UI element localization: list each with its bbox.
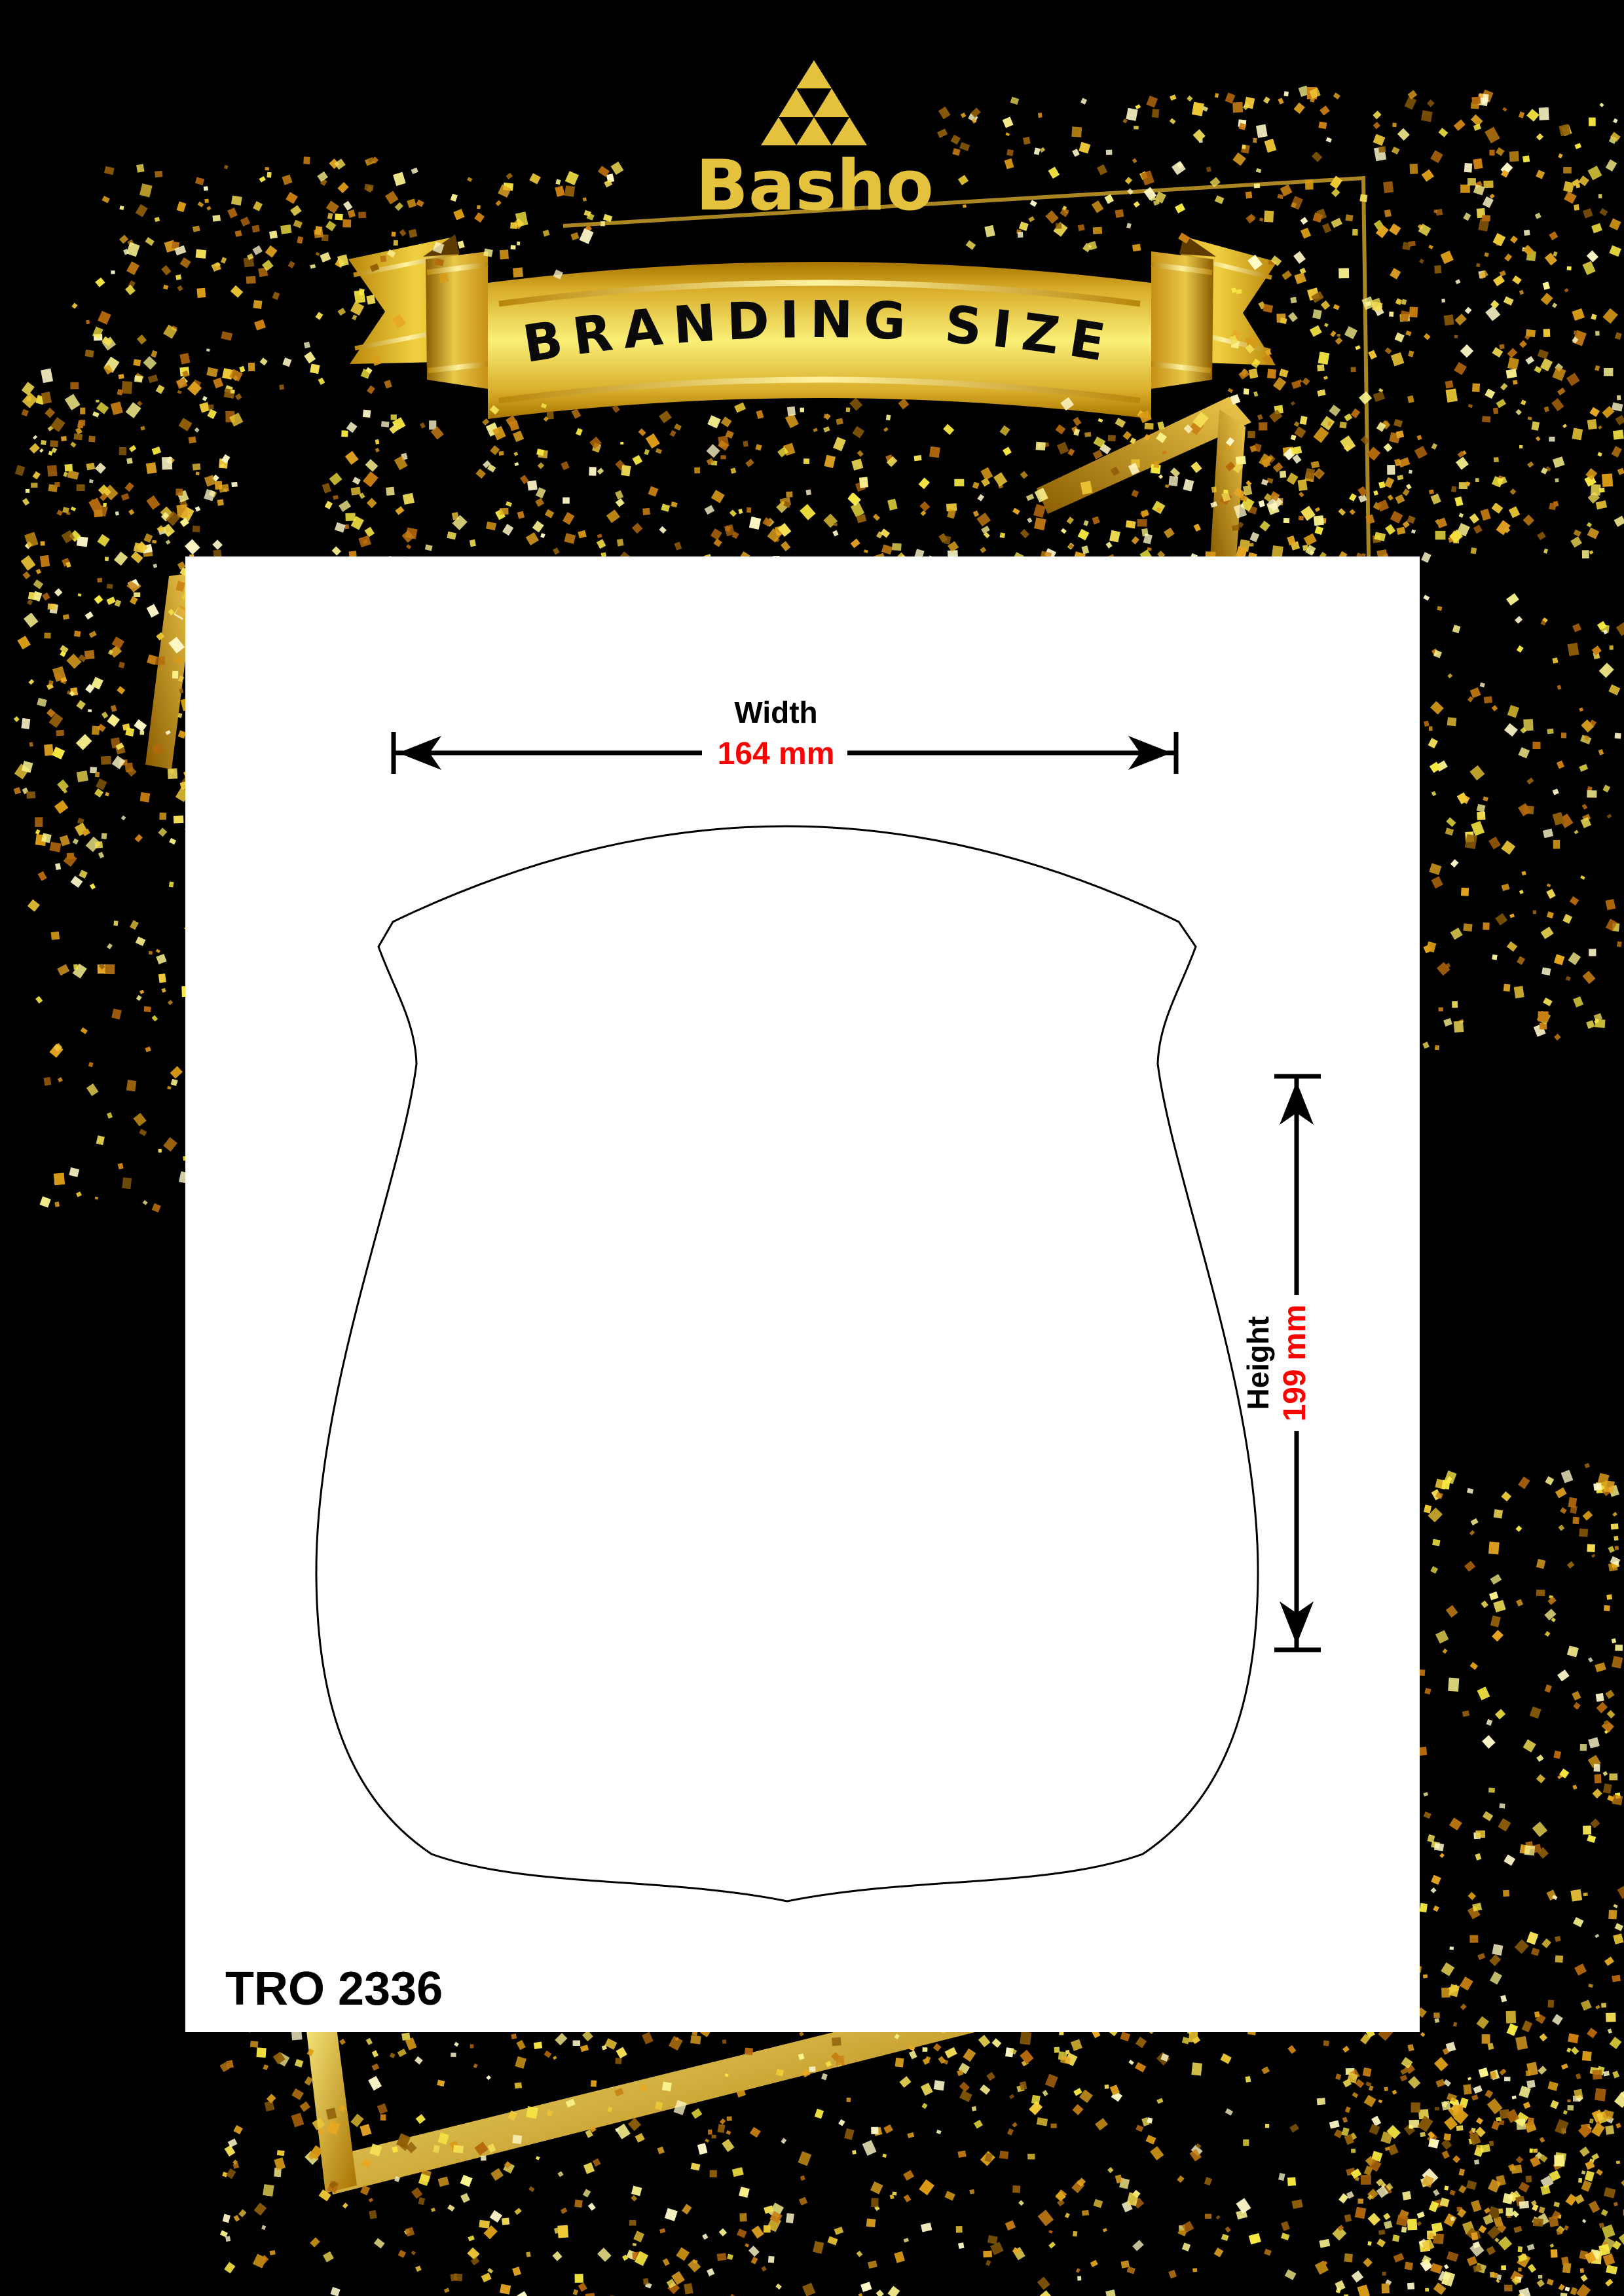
height-label: Height xyxy=(1241,1316,1275,1410)
glitter-speck xyxy=(1454,1021,1464,1032)
glitter-speck xyxy=(787,407,796,416)
glitter-speck xyxy=(88,709,92,712)
glitter-speck xyxy=(513,267,523,277)
glitter-speck xyxy=(175,488,183,496)
glitter-speck xyxy=(85,350,94,357)
glitter-speck xyxy=(1587,419,1597,429)
glitter-speck xyxy=(1615,733,1621,738)
glitter-speck xyxy=(1082,2210,1089,2216)
glitter-speck xyxy=(1578,2178,1582,2183)
glitter-speck xyxy=(1506,369,1517,378)
glitter-speck xyxy=(743,441,748,447)
glitter-speck xyxy=(1598,194,1602,198)
glitter-speck xyxy=(1105,2085,1109,2089)
glitter-speck xyxy=(380,255,386,262)
glitter-speck xyxy=(1476,263,1481,267)
glitter-speck xyxy=(1435,1045,1439,1050)
glitter-speck xyxy=(1594,1764,1600,1772)
glitter-speck xyxy=(1192,102,1204,117)
glitter-speck xyxy=(269,230,278,239)
glitter-speck xyxy=(498,451,504,456)
glitter-speck xyxy=(1595,331,1599,336)
glitter-speck xyxy=(1429,490,1434,494)
product-code: TRO 2336 xyxy=(225,1963,443,2015)
glitter-speck xyxy=(44,744,54,756)
glitter-speck xyxy=(1526,2080,1536,2088)
glitter-speck xyxy=(342,219,351,228)
glitter-speck xyxy=(515,2083,522,2089)
glitter-speck xyxy=(149,951,153,955)
glitter-speck xyxy=(1504,2077,1511,2081)
glitter-speck xyxy=(1533,2218,1543,2227)
glitter-speck xyxy=(1298,479,1308,491)
glitter-speck xyxy=(1444,2185,1449,2190)
glitter-speck xyxy=(88,436,96,443)
glitter-speck xyxy=(615,2058,621,2064)
glitter-speck xyxy=(80,408,85,414)
glitter-speck xyxy=(1505,2208,1513,2216)
glitter-speck xyxy=(1249,543,1254,546)
glitter-speck xyxy=(95,841,103,848)
glitter-speck xyxy=(642,508,650,515)
glitter-speck xyxy=(1492,1944,1503,1956)
glitter-speck xyxy=(1606,2013,1616,2022)
glitter-speck xyxy=(470,2044,474,2049)
glitter-speck xyxy=(621,465,631,476)
glitter-speck xyxy=(510,222,517,228)
glitter-speck xyxy=(892,543,902,551)
glitter-speck xyxy=(1498,2208,1503,2214)
glitter-speck xyxy=(1429,726,1433,731)
glitter-speck xyxy=(1605,2125,1614,2135)
glitter-speck xyxy=(643,2278,649,2285)
glitter-speck xyxy=(174,816,184,824)
glitter-speck xyxy=(1587,1544,1595,1552)
glitter-speck xyxy=(1392,122,1397,127)
glitter-speck xyxy=(511,245,516,249)
glitter-speck xyxy=(208,404,214,409)
glitter-speck xyxy=(303,156,310,164)
glitter-speck xyxy=(747,507,751,513)
glitter-speck xyxy=(50,440,58,447)
glitter-speck xyxy=(1603,1783,1612,1794)
glitter-speck xyxy=(1211,486,1217,493)
glitter-speck xyxy=(263,2184,274,2196)
glitter-speck xyxy=(101,833,107,839)
glitter-speck xyxy=(1614,1536,1618,1541)
glitter-speck xyxy=(954,479,964,486)
glitter-speck xyxy=(1532,742,1540,749)
glitter-speck xyxy=(929,446,940,458)
glitter-speck xyxy=(1612,1975,1621,1982)
glitter-speck xyxy=(1387,465,1395,475)
glitter-speck xyxy=(1547,729,1553,734)
width-value: 164 mm xyxy=(718,737,835,771)
glitter-speck xyxy=(125,763,134,773)
glitter-speck xyxy=(1243,2140,1249,2146)
glitter-speck xyxy=(1323,2040,1329,2046)
glitter-speck xyxy=(786,492,792,498)
glitter-speck xyxy=(1475,478,1479,482)
glitter-speck xyxy=(1272,545,1283,558)
glitter-speck xyxy=(1441,2101,1450,2111)
glitter-speck xyxy=(1471,547,1477,554)
glitter-speck xyxy=(717,2253,727,2261)
glitter-speck xyxy=(1134,126,1139,130)
glitter-speck xyxy=(1561,733,1566,738)
glitter-speck xyxy=(1145,423,1154,429)
glitter-speck xyxy=(1454,335,1458,338)
glitter-speck xyxy=(26,489,29,493)
glitter-speck xyxy=(1567,266,1572,270)
glitter-speck xyxy=(204,199,208,203)
glitter-speck xyxy=(35,817,43,827)
glitter-speck xyxy=(1339,422,1346,428)
glitter-speck xyxy=(1242,145,1246,149)
glitter-speck xyxy=(344,524,349,530)
glitter-speck xyxy=(265,167,269,171)
glitter-speck xyxy=(895,2058,904,2068)
glitter-speck xyxy=(1519,2201,1529,2209)
glitter-speck xyxy=(511,2033,517,2039)
glitter-speck xyxy=(152,540,157,544)
glitter-speck xyxy=(1115,209,1124,217)
glitter-speck xyxy=(1589,118,1596,126)
sheet-canvas: BRANDING SIZE Basho Width 164 mm xyxy=(0,0,1624,2296)
glitter-speck xyxy=(48,680,54,685)
glitter-speck xyxy=(1483,181,1493,189)
glitter-speck xyxy=(1420,2132,1426,2137)
glitter-speck xyxy=(1533,910,1536,914)
glitter-speck xyxy=(1054,2047,1060,2053)
glitter-speck xyxy=(1541,968,1551,975)
glitter-speck xyxy=(77,771,88,782)
glitter-speck xyxy=(168,768,177,779)
glitter-speck xyxy=(1555,1956,1563,1963)
glitter-speck xyxy=(1523,719,1534,731)
glitter-speck xyxy=(1473,158,1483,170)
glitter-speck xyxy=(1536,1590,1545,1596)
glitter-speck xyxy=(1467,178,1476,185)
glitter-speck xyxy=(1574,2089,1583,2099)
glitter-speck xyxy=(1602,473,1613,487)
glitter-speck xyxy=(77,484,85,492)
glitter-speck xyxy=(1078,225,1085,232)
glitter-speck xyxy=(1318,122,1327,130)
glitter-speck xyxy=(196,249,207,259)
glitter-speck xyxy=(158,974,166,983)
glitter-speck xyxy=(451,2052,456,2057)
glitter-speck xyxy=(557,2225,568,2238)
glitter-speck xyxy=(1530,2149,1533,2153)
glitter-speck xyxy=(914,455,922,461)
glitter-speck xyxy=(1264,211,1274,223)
glitter-speck xyxy=(61,436,67,441)
glitter-speck xyxy=(1572,1517,1579,1524)
glitter-speck xyxy=(620,442,623,445)
glitter-speck xyxy=(29,742,33,747)
glitter-speck xyxy=(341,430,348,437)
glitter-speck xyxy=(1407,2219,1417,2231)
glitter-speck xyxy=(366,295,375,304)
glitter-speck xyxy=(1267,369,1276,378)
glitter-speck xyxy=(86,320,90,325)
glitter-speck xyxy=(111,270,115,274)
glitter-speck xyxy=(40,555,50,568)
glitter-speck xyxy=(1580,2268,1584,2273)
glitter-speck xyxy=(1595,2088,1606,2102)
glitter-speck xyxy=(363,410,371,418)
glitter-speck xyxy=(1432,1539,1440,1546)
glitter-speck xyxy=(1504,2285,1512,2291)
glitter-speck xyxy=(1506,2011,1517,2023)
glitter-speck xyxy=(1402,242,1411,250)
glitter-speck xyxy=(1513,380,1518,384)
glitter-speck xyxy=(1433,2013,1440,2018)
glitter-speck xyxy=(1549,437,1555,442)
glitter-speck xyxy=(1474,2159,1479,2164)
glitter-speck xyxy=(1284,91,1289,96)
glitter-speck xyxy=(1299,516,1304,520)
glitter-speck xyxy=(1582,2051,1592,2061)
glitter-speck xyxy=(1604,1605,1610,1611)
glitter-speck xyxy=(1361,2175,1371,2185)
glitter-speck xyxy=(1610,646,1614,650)
glitter-speck xyxy=(1382,2272,1386,2276)
glitter-speck xyxy=(94,509,103,517)
glitter-speck xyxy=(1317,365,1325,372)
glitter-speck xyxy=(126,1080,137,1091)
glitter-speck xyxy=(119,447,127,456)
glitter-speck xyxy=(847,2098,851,2102)
glitter-speck xyxy=(1551,2249,1558,2257)
glitter-speck xyxy=(1351,2149,1356,2153)
glitter-speck xyxy=(56,730,64,737)
glitter-speck xyxy=(1106,150,1113,155)
glitter-speck xyxy=(193,526,200,533)
glitter-speck xyxy=(134,375,143,382)
glitter-speck xyxy=(1583,1893,1588,1897)
glitter-speck xyxy=(1471,2232,1478,2240)
glitter-speck xyxy=(708,2129,712,2134)
glitter-speck xyxy=(629,2220,637,2226)
glitter-speck xyxy=(44,1077,52,1085)
glitter-speck xyxy=(999,2151,1008,2159)
glitter-speck xyxy=(1519,445,1522,448)
glitter-speck xyxy=(1317,2098,1325,2105)
glitter-speck xyxy=(1443,2133,1451,2140)
glitter-speck xyxy=(1402,2191,1411,2200)
glitter-speck xyxy=(107,584,113,589)
glitter-speck xyxy=(1604,1480,1615,1493)
glitter-speck xyxy=(1534,2011,1540,2018)
glitter-speck xyxy=(1445,380,1454,389)
glitter-speck xyxy=(196,288,206,298)
glitter-speck xyxy=(1409,2120,1420,2128)
glitter-speck xyxy=(871,2127,878,2134)
glitter-speck xyxy=(252,225,260,232)
glitter-speck xyxy=(1599,2223,1604,2228)
glitter-speck xyxy=(144,1006,151,1012)
glitter-speck xyxy=(1596,1693,1604,1702)
glitter-speck xyxy=(1488,1787,1495,1793)
glitter-speck xyxy=(1447,717,1457,726)
glitter-speck xyxy=(1527,2117,1534,2126)
glitter-speck xyxy=(1168,476,1178,486)
glitter-speck xyxy=(1488,1542,1500,1555)
glitter-speck xyxy=(866,2219,876,2228)
glitter-speck xyxy=(517,242,520,246)
glitter-speck xyxy=(575,2274,583,2283)
glitter-speck xyxy=(1441,299,1445,302)
glitter-speck xyxy=(204,186,208,191)
glitter-speck xyxy=(1423,1974,1428,1978)
glitter-speck xyxy=(526,2106,538,2119)
glitter-speck xyxy=(1522,155,1530,162)
glitter-speck xyxy=(1489,150,1494,156)
glitter-speck xyxy=(1547,2000,1554,2008)
glitter-speck xyxy=(834,523,838,526)
glitter-speck xyxy=(1533,2149,1538,2153)
glitter-speck xyxy=(745,2048,753,2056)
glitter-speck xyxy=(1435,531,1446,539)
glitter-speck xyxy=(662,2082,672,2092)
glitter-speck xyxy=(193,464,201,471)
glitter-speck xyxy=(1027,2154,1035,2160)
glitter-speck xyxy=(65,464,73,471)
glitter-speck xyxy=(139,731,144,735)
glitter-speck xyxy=(1259,422,1267,431)
glitter-speck xyxy=(1018,232,1024,238)
glitter-speck xyxy=(1425,2288,1429,2291)
glitter-speck xyxy=(1378,146,1386,153)
glitter-speck xyxy=(1517,2246,1522,2252)
glitter-speck xyxy=(155,657,165,665)
glitter-speck xyxy=(1587,790,1596,797)
glitter-speck xyxy=(256,2047,266,2058)
glitter-speck xyxy=(805,489,811,495)
glitter-speck xyxy=(159,812,166,820)
glitter-speck xyxy=(380,2115,386,2121)
glitter-speck xyxy=(836,2056,844,2066)
glitter-speck xyxy=(1543,329,1551,337)
glitter-speck xyxy=(1456,2125,1464,2131)
glitter-speck xyxy=(1526,2070,1531,2076)
glitter-speck xyxy=(1434,265,1441,274)
glitter-speck xyxy=(1494,457,1499,462)
glitter-speck xyxy=(212,215,221,221)
glitter-speck xyxy=(1460,185,1470,193)
glitter-speck xyxy=(1616,2160,1620,2164)
glitter-speck xyxy=(162,457,172,470)
glitter-speck xyxy=(1599,488,1605,493)
glitter-speck xyxy=(1137,519,1147,527)
glitter-speck xyxy=(1492,955,1497,960)
glitter-speck xyxy=(1205,2214,1211,2219)
glitter-speck xyxy=(1518,2268,1522,2272)
glitter-speck xyxy=(574,2199,583,2208)
glitter-speck xyxy=(1363,2068,1372,2077)
glitter-speck xyxy=(720,455,726,459)
glitter-speck xyxy=(1357,2198,1363,2204)
glitter-speck xyxy=(105,556,109,561)
glitter-speck xyxy=(44,632,50,638)
glitter-speck xyxy=(158,1149,162,1153)
glitter-speck xyxy=(391,414,397,420)
glitter-speck xyxy=(196,472,200,475)
glitter-speck xyxy=(277,2150,285,2156)
glitter-speck xyxy=(1574,331,1578,335)
glitter-speck xyxy=(122,381,133,394)
glitter-speck xyxy=(481,2156,487,2161)
glitter-speck xyxy=(600,221,605,227)
glitter-speck xyxy=(1265,2124,1269,2128)
glitter-speck xyxy=(41,541,45,546)
glitter-speck xyxy=(983,2251,992,2258)
glitter-speck xyxy=(95,772,100,778)
glitter-speck xyxy=(1617,395,1621,400)
glitter-speck xyxy=(381,421,390,428)
glitter-speck xyxy=(231,482,238,487)
glitter-speck xyxy=(1318,352,1329,365)
glitter-speck xyxy=(1583,1825,1591,1834)
glitter-speck xyxy=(1351,367,1356,372)
glitter-speck xyxy=(1421,110,1433,122)
glitter-speck xyxy=(1126,520,1136,529)
glitter-speck xyxy=(394,240,398,246)
glitter-speck xyxy=(1464,163,1472,173)
glitter-speck xyxy=(279,384,284,390)
glitter-speck xyxy=(852,2150,857,2155)
glitter-speck xyxy=(1314,515,1324,526)
glitter-speck xyxy=(573,2041,581,2047)
glitter-speck xyxy=(155,171,162,177)
glitter-speck xyxy=(1469,1935,1478,1943)
glitter-speck xyxy=(103,503,107,507)
glitter-speck xyxy=(1567,2100,1570,2103)
glitter-speck xyxy=(500,2284,511,2295)
glitter-speck xyxy=(1615,1546,1619,1550)
glitter-speck xyxy=(351,487,361,496)
glitter-speck xyxy=(1073,2231,1077,2237)
glitter-speck xyxy=(1036,442,1046,450)
glitter-speck xyxy=(1020,2032,1031,2045)
glitter-speck xyxy=(48,604,56,610)
glitter-speck xyxy=(1613,429,1624,439)
glitter-speck xyxy=(617,539,624,547)
glitter-speck xyxy=(54,1173,65,1185)
glitter-speck xyxy=(1601,2003,1606,2007)
glitter-speck xyxy=(335,213,343,220)
glitter-speck xyxy=(1305,179,1314,189)
glitter-speck xyxy=(1579,1529,1588,1537)
glitter-speck xyxy=(1384,210,1392,217)
glitter-speck xyxy=(1524,230,1530,236)
glitter-speck xyxy=(1484,696,1492,703)
glitter-speck xyxy=(1563,167,1572,173)
glitter-speck xyxy=(231,196,242,206)
glitter-speck xyxy=(310,364,320,374)
glitter-speck xyxy=(1031,2095,1041,2104)
glitter-speck xyxy=(1610,1774,1618,1781)
glitter-speck xyxy=(392,232,396,237)
glitter-speck xyxy=(453,2145,464,2153)
glitter-speck xyxy=(1463,923,1472,931)
glitter-speck xyxy=(215,481,223,490)
glitter-speck xyxy=(1409,307,1418,318)
glitter-speck xyxy=(527,481,538,491)
glitter-speck xyxy=(477,205,481,209)
